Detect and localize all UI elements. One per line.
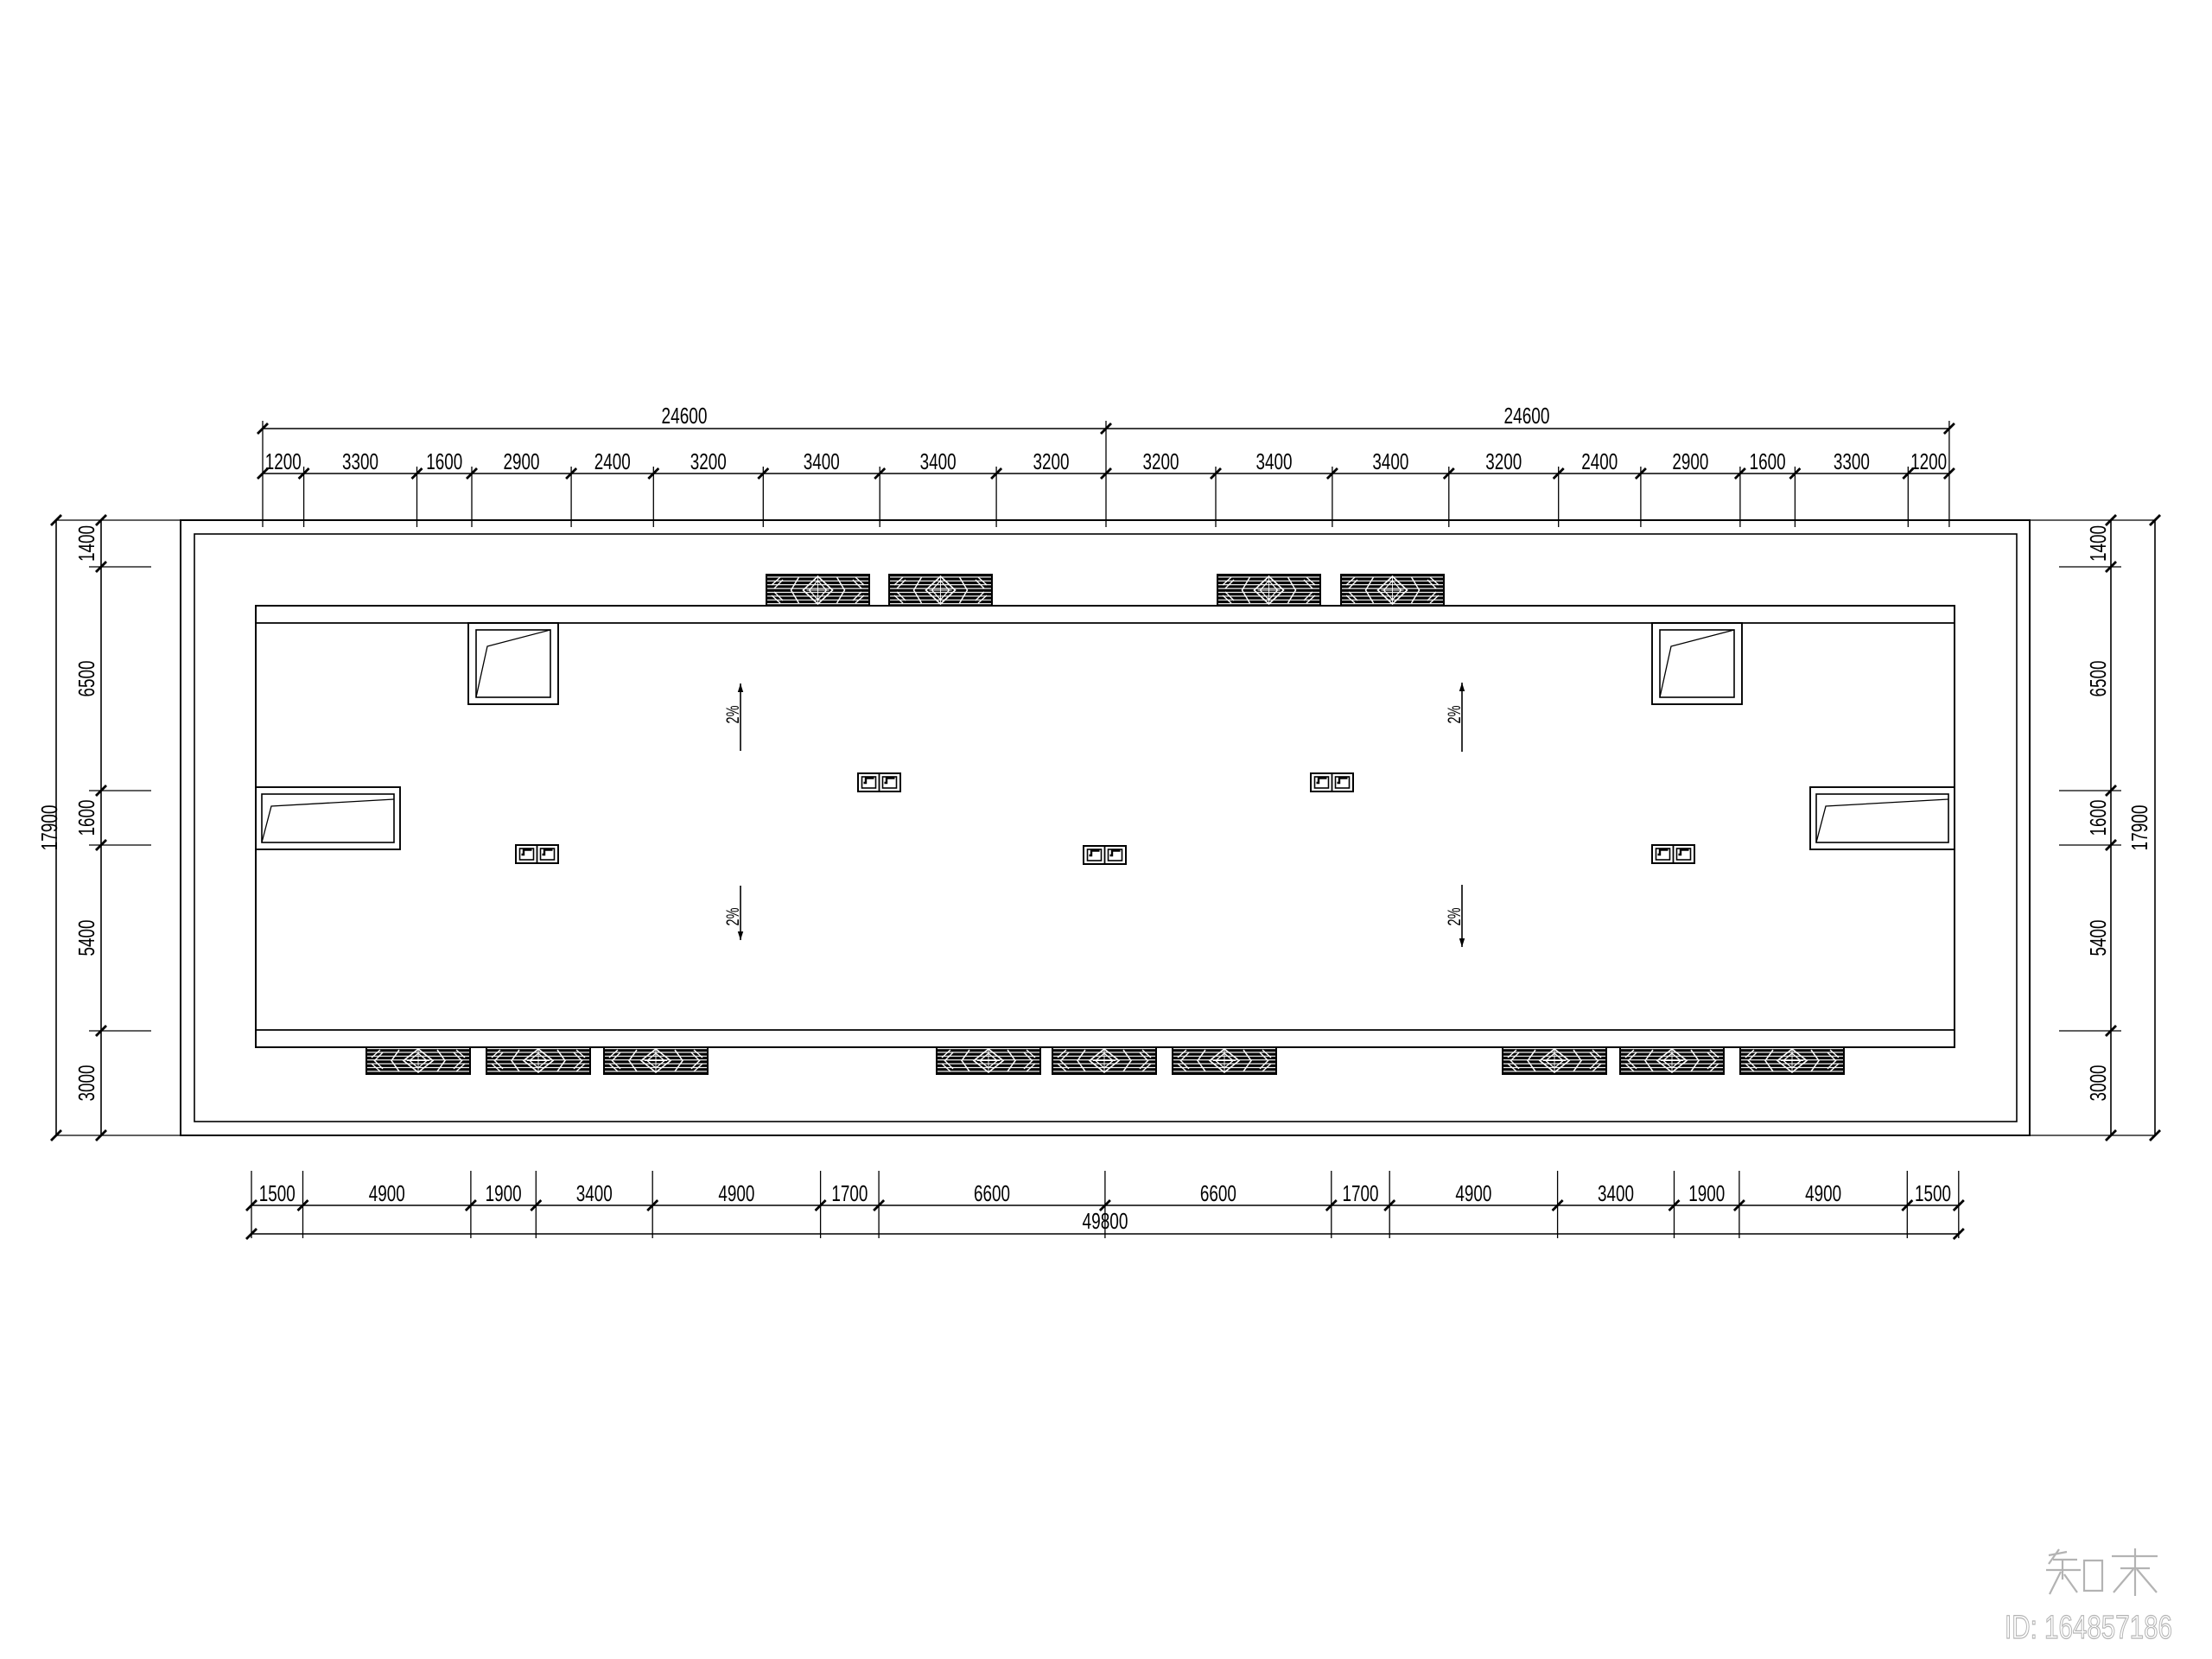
svg-text:1200: 1200 [1910,448,1947,474]
svg-text:4900: 4900 [1455,1180,1491,1206]
svg-text:2%: 2% [1445,908,1465,926]
svg-text:1600: 1600 [426,448,462,474]
svg-text:3000: 3000 [73,1065,99,1102]
svg-text:5400: 5400 [2085,920,2111,957]
svg-text:3000: 3000 [2085,1065,2111,1102]
svg-text:2400: 2400 [594,448,631,474]
svg-text:1900: 1900 [1688,1180,1725,1206]
svg-text:3200: 3200 [690,448,727,474]
svg-text:1900: 1900 [486,1180,522,1206]
svg-text:2%: 2% [723,908,743,926]
svg-text:6500: 6500 [2085,661,2111,697]
svg-text:6500: 6500 [73,661,99,697]
svg-text:17900: 17900 [36,805,62,851]
svg-text:24600: 24600 [662,403,708,429]
svg-text:3200: 3200 [1033,448,1070,474]
svg-text:17900: 17900 [2126,805,2152,851]
svg-text:4900: 4900 [718,1180,754,1206]
svg-text:3300: 3300 [1834,448,1870,474]
svg-text:4900: 4900 [369,1180,405,1206]
svg-text:ID: 164857186: ID: 164857186 [2005,1610,2172,1646]
svg-text:2400: 2400 [1581,448,1618,474]
svg-text:6600: 6600 [1200,1180,1236,1206]
svg-text:2900: 2900 [1672,448,1708,474]
svg-text:2900: 2900 [504,448,540,474]
svg-text:3400: 3400 [576,1180,613,1206]
svg-text:5400: 5400 [73,920,99,957]
svg-text:3300: 3300 [342,448,378,474]
svg-text:6600: 6600 [974,1180,1010,1206]
svg-text:2%: 2% [1445,706,1465,724]
svg-text:3400: 3400 [1598,1180,1634,1206]
svg-text:3400: 3400 [1255,448,1292,474]
svg-text:1500: 1500 [259,1180,296,1206]
svg-text:3400: 3400 [1372,448,1408,474]
svg-text:3200: 3200 [1143,448,1179,474]
svg-text:1400: 1400 [2085,525,2111,562]
svg-text:3200: 3200 [1485,448,1522,474]
svg-text:24600: 24600 [1504,403,1550,429]
svg-text:1600: 1600 [73,800,99,836]
svg-text:1700: 1700 [831,1180,868,1206]
svg-text:1600: 1600 [1750,448,1786,474]
svg-text:1200: 1200 [265,448,302,474]
svg-text:4900: 4900 [1805,1180,1841,1206]
svg-text:2%: 2% [723,706,743,724]
svg-text:3400: 3400 [920,448,957,474]
svg-text:1500: 1500 [1915,1180,1951,1206]
svg-text:1600: 1600 [2085,800,2111,836]
svg-text:1400: 1400 [73,525,99,562]
svg-text:3400: 3400 [804,448,840,474]
svg-text:1700: 1700 [1343,1180,1379,1206]
